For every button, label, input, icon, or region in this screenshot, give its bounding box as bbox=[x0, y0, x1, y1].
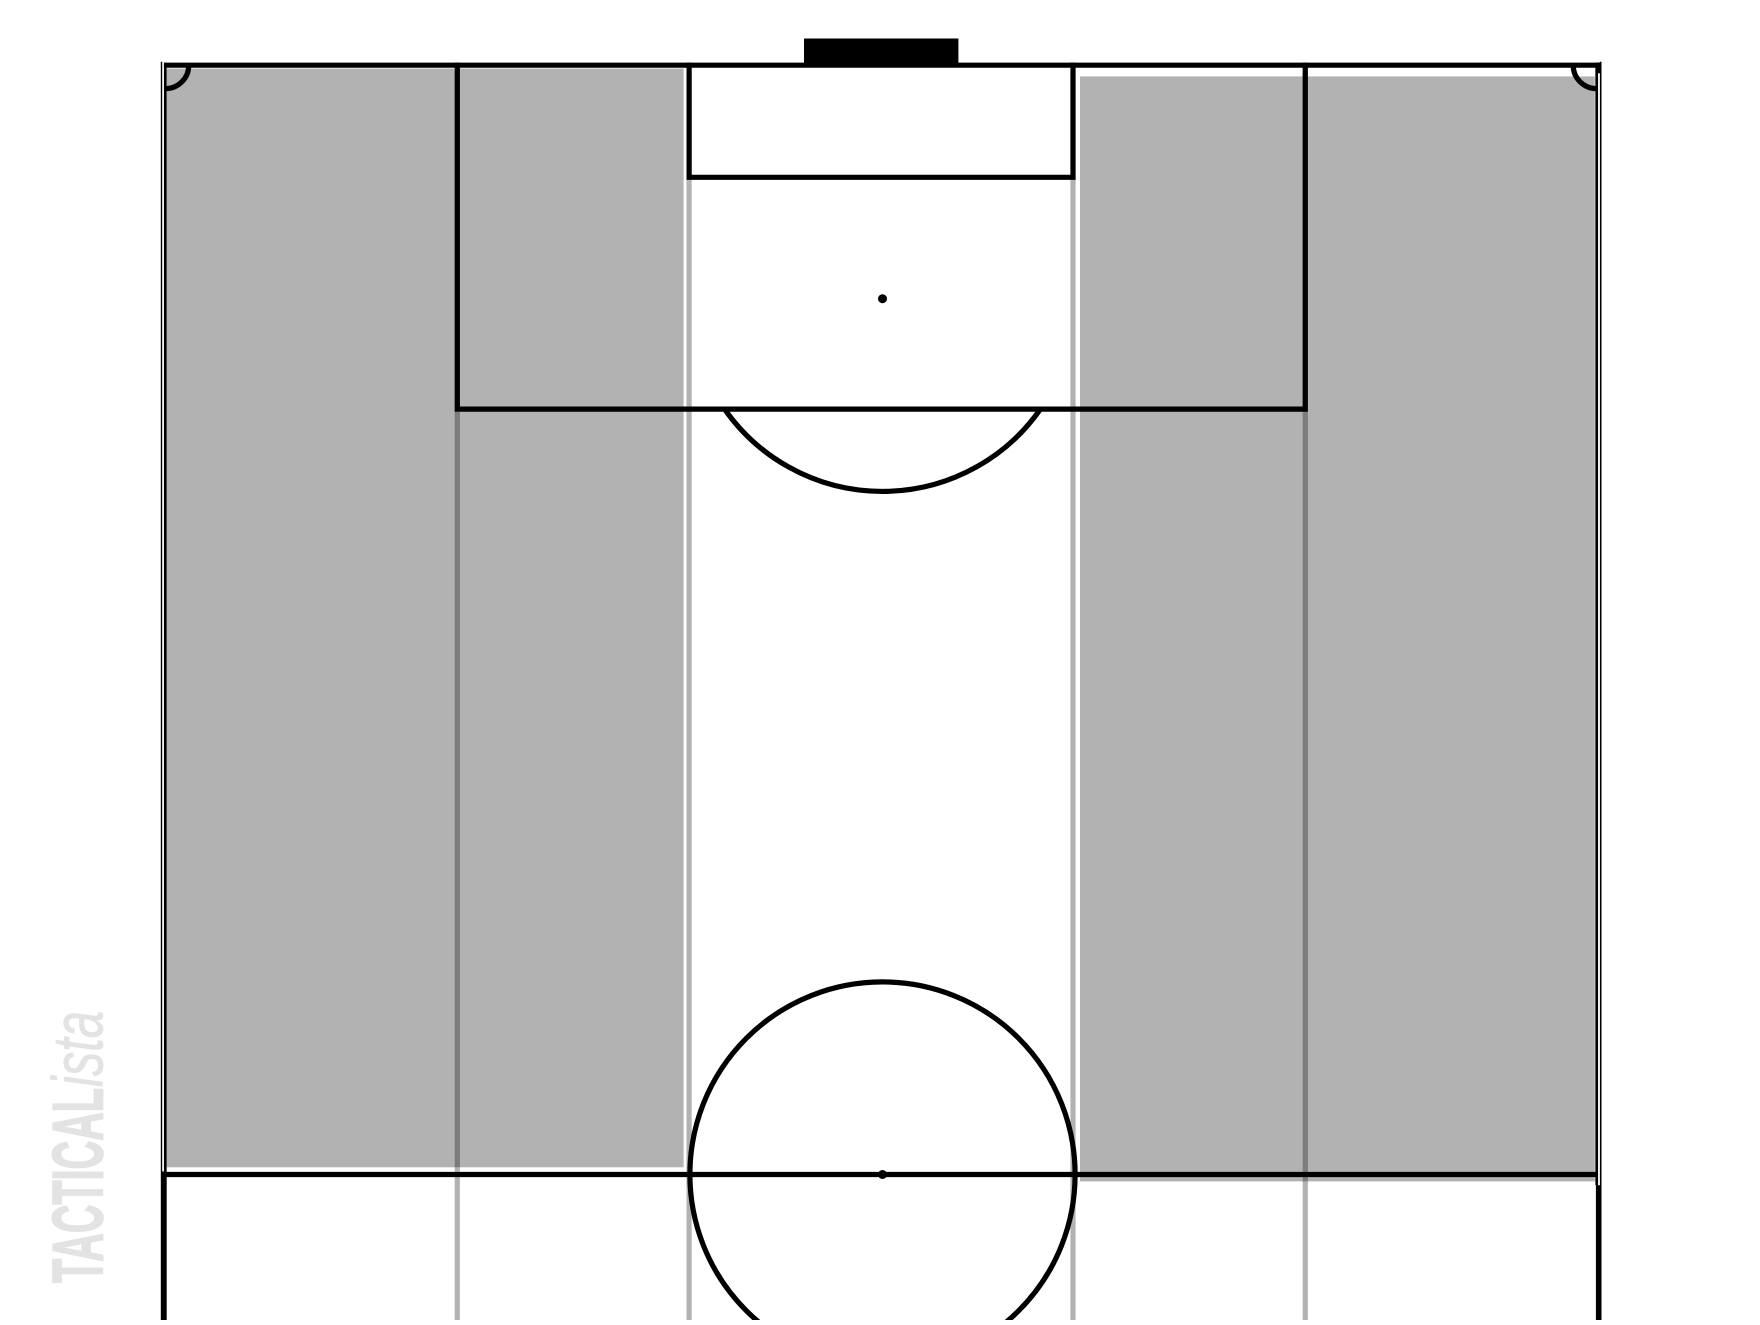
svg-text:TACTICAL: TACTICAL bbox=[40, 1088, 119, 1283]
svg-text:ista: ista bbox=[40, 1011, 119, 1087]
